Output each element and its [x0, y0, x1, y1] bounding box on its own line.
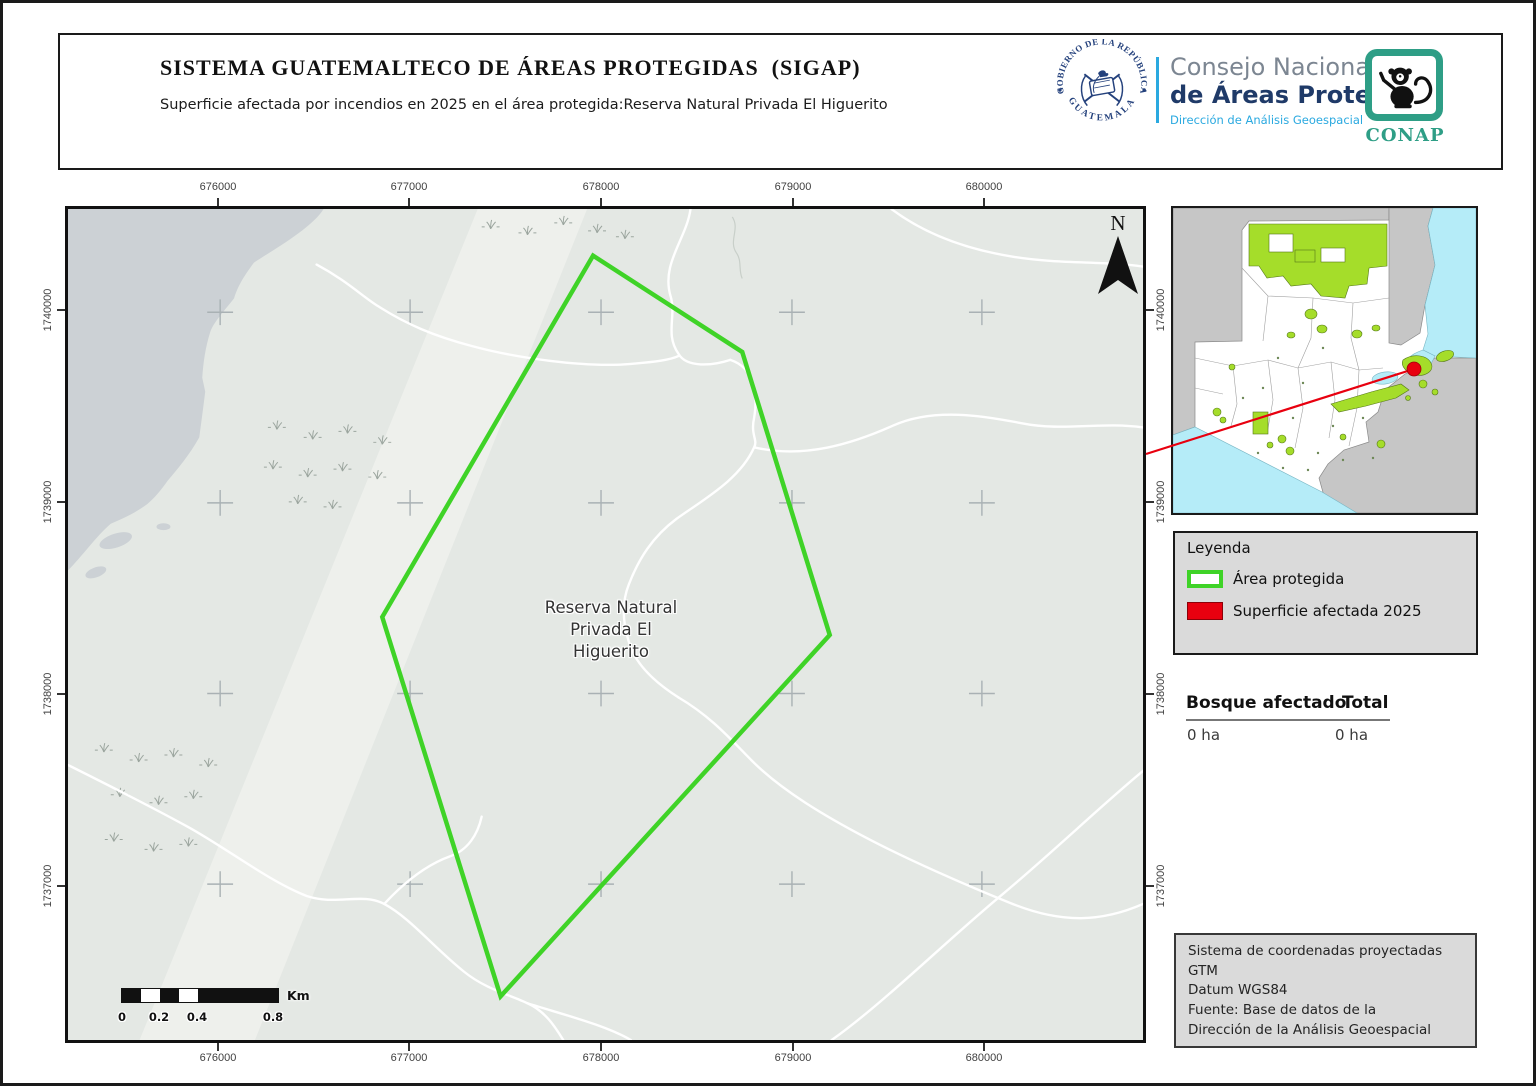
legend-item-label: Área protegida — [1233, 570, 1344, 588]
x-axis-label: 679000 — [775, 1052, 812, 1064]
table-rule — [1186, 719, 1390, 721]
legend-item: Superficie afectada 2025 — [1187, 600, 1421, 622]
conap-monkey-icon — [1372, 56, 1436, 114]
axis-tick — [408, 1043, 410, 1051]
page-title: SISTEMA GUATEMALTECO DE ÁREAS PROTEGIDAS… — [160, 55, 861, 81]
conap-logo-frame — [1365, 49, 1443, 121]
scale-tick-02: 0.2 — [149, 1010, 169, 1024]
axis-tick — [57, 885, 65, 887]
x-axis-label: 678000 — [583, 1052, 620, 1064]
y-axis-label: 1737000 — [1155, 865, 1167, 908]
x-axis-label: 678000 — [583, 181, 620, 193]
axis-tick — [57, 693, 65, 695]
north-arrow: N — [1097, 211, 1139, 298]
y-axis-label: 1737000 — [42, 865, 54, 908]
axis-tick — [217, 198, 219, 206]
seal-arc-bottom-text: GUATEMALA — [1066, 96, 1139, 124]
y-axis-label: 1740000 — [42, 289, 54, 332]
north-arrow-icon — [1098, 236, 1138, 294]
legend: Leyenda Área protegida Superficie afecta… — [1173, 531, 1478, 655]
government-seal-icon: GOBIERNO DE LA REPÚBLICA GUATEMALA — [1053, 39, 1151, 141]
legend-item-label: Superficie afectada 2025 — [1233, 602, 1421, 620]
svg-text:GUATEMALA: GUATEMALA — [1066, 96, 1139, 124]
y-axis-label: 1739000 — [42, 481, 54, 524]
axis-tick — [600, 1043, 602, 1051]
legend-title: Leyenda — [1187, 539, 1251, 557]
info-line: Dirección de la Análisis Geoespacial — [1188, 1021, 1463, 1041]
affected-area-swatch — [1187, 602, 1223, 620]
x-axis-label: 676000 — [200, 181, 237, 193]
axis-tick — [983, 1043, 985, 1051]
y-axis-label: 1738000 — [42, 673, 54, 716]
axis-tick — [57, 309, 65, 311]
north-label: N — [1097, 211, 1139, 236]
table-header-total: Total — [1342, 693, 1388, 713]
x-axis-label: 680000 — [966, 1052, 1003, 1064]
protected-area-label: Reserva Natural Privada El Higuerito — [501, 597, 721, 662]
axis-tick — [57, 501, 65, 503]
location-callout — [1146, 359, 1426, 463]
y-axis-label: 1738000 — [1155, 673, 1167, 716]
info-line: Fuente: Base de datos de la — [1188, 1001, 1463, 1021]
info-line: GTM — [1188, 962, 1463, 982]
conap-logo: CONAP — [1365, 49, 1445, 146]
scale-tick-0: 0 — [118, 1010, 126, 1024]
coordinate-system-info: Sistema de coordenadas proyectadas GTM D… — [1174, 933, 1477, 1048]
protected-area-swatch — [1187, 570, 1223, 588]
scale-tick-04: 0.4 — [187, 1010, 207, 1024]
total-value: 0 ha — [1335, 726, 1368, 744]
info-line: Sistema de coordenadas proyectadas — [1188, 942, 1463, 962]
org-name-line1: Consejo Nacional — [1170, 53, 1377, 81]
axis-tick — [792, 198, 794, 206]
axis-tick — [983, 198, 985, 206]
y-axis-label: 1740000 — [1155, 289, 1167, 332]
scale-tick-08: 0.8 — [263, 1010, 283, 1024]
conap-logo-text: CONAP — [1365, 125, 1445, 146]
location-dot — [1407, 362, 1421, 376]
x-axis-label: 677000 — [391, 181, 428, 193]
page-subtitle: Superficie afectada por incendios en 202… — [160, 97, 888, 113]
main-map: Reserva Natural Privada El Higuerito N K… — [65, 206, 1146, 1043]
axis-tick — [1146, 693, 1154, 695]
y-axis-label: 1739000 — [1155, 481, 1167, 524]
table-header-bosque: Bosque afectado — [1186, 693, 1346, 713]
logo-divider — [1156, 57, 1159, 123]
org-name-line3: Dirección de Análisis Geoespacial — [1170, 113, 1363, 127]
axis-tick — [217, 1043, 219, 1051]
scale-bar: Km 0 0.2 0.4 0.8 — [121, 988, 331, 1030]
axis-tick — [1146, 309, 1154, 311]
legend-item: Área protegida — [1187, 568, 1344, 590]
seal-coat-of-arms — [1081, 70, 1122, 105]
map-sheet: SISTEMA GUATEMALTECO DE ÁREAS PROTEGIDAS… — [0, 0, 1536, 1086]
bosque-afectado-value: 0 ha — [1187, 726, 1220, 744]
scale-bar-segments — [121, 988, 279, 1003]
axis-tick — [600, 198, 602, 206]
header: SISTEMA GUATEMALTECO DE ÁREAS PROTEGIDAS… — [58, 33, 1503, 170]
x-axis-label: 676000 — [200, 1052, 237, 1064]
axis-tick — [1146, 501, 1154, 503]
info-line: Datum WGS84 — [1188, 981, 1463, 1001]
scale-bar-unit: Km — [287, 988, 310, 1003]
x-axis-label: 680000 — [966, 181, 1003, 193]
axis-tick — [792, 1043, 794, 1051]
axis-tick — [408, 198, 410, 206]
axis-tick — [1146, 885, 1154, 887]
affected-forest-table: Bosque afectado Total 0 ha 0 ha — [1186, 693, 1392, 750]
x-axis-label: 679000 — [775, 181, 812, 193]
x-axis-label: 677000 — [391, 1052, 428, 1064]
